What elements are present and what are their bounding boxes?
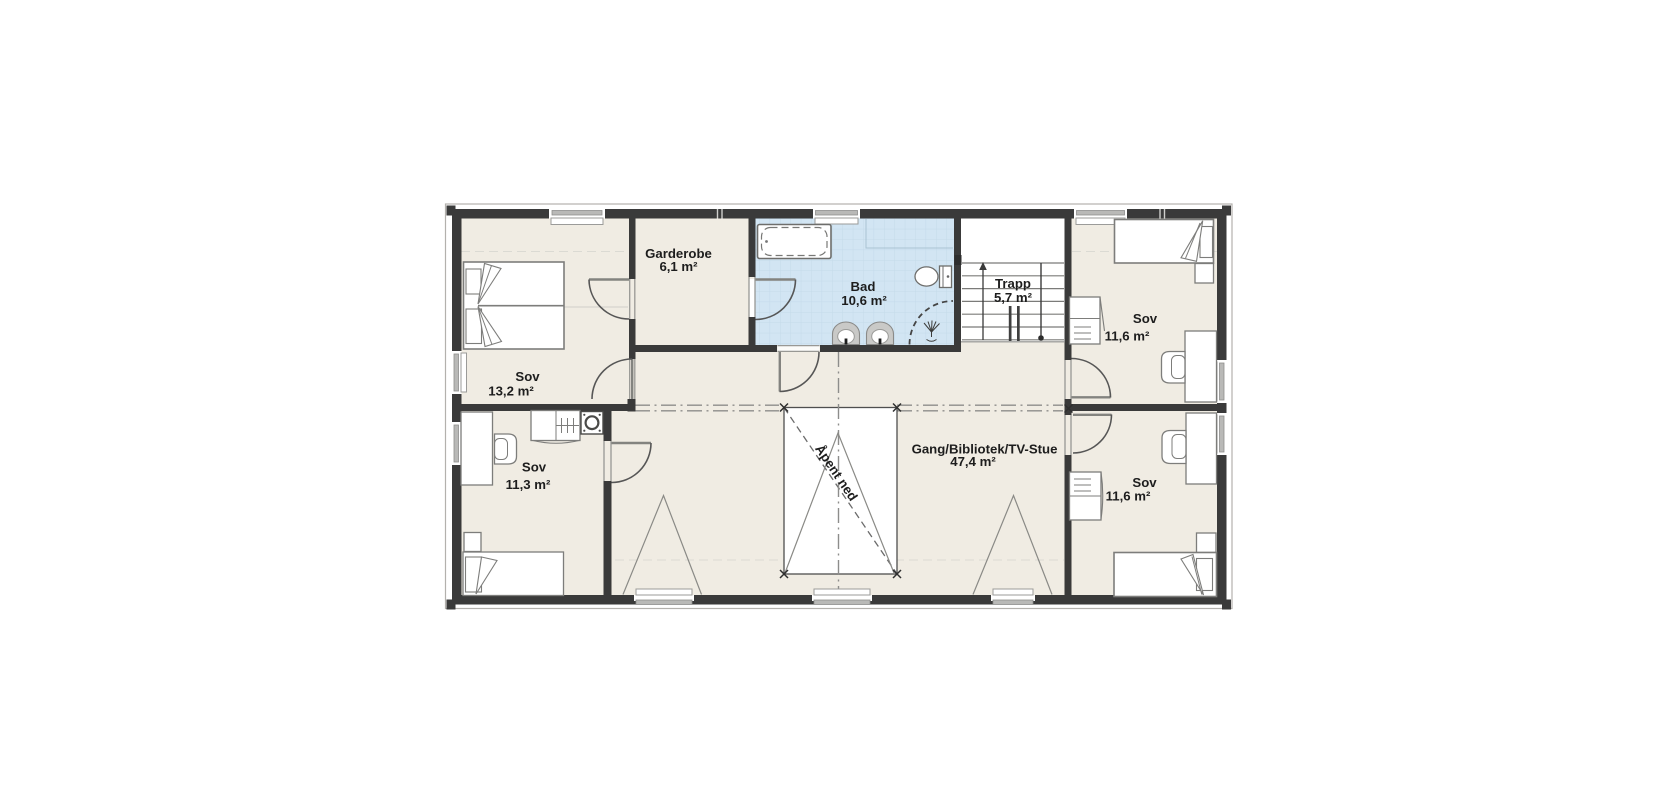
svg-text:5,7 m²: 5,7 m² bbox=[994, 290, 1033, 305]
svg-text:11,6 m²: 11,6 m² bbox=[1105, 329, 1150, 344]
svg-text:Sov: Sov bbox=[515, 369, 540, 384]
svg-text:11,6 m²: 11,6 m² bbox=[1106, 489, 1151, 504]
svg-text:47,4 m²: 47,4 m² bbox=[950, 454, 996, 469]
svg-text:Bad: Bad bbox=[851, 279, 876, 294]
svg-text:11,3 m²: 11,3 m² bbox=[506, 477, 551, 492]
svg-text:Trapp: Trapp bbox=[995, 276, 1031, 291]
svg-text:Sov: Sov bbox=[522, 460, 547, 475]
svg-text:10,6 m²: 10,6 m² bbox=[841, 293, 887, 308]
svg-text:Sov: Sov bbox=[1133, 311, 1158, 326]
svg-text:13,2 m²: 13,2 m² bbox=[488, 384, 534, 399]
svg-text:6,1 m²: 6,1 m² bbox=[659, 259, 698, 274]
